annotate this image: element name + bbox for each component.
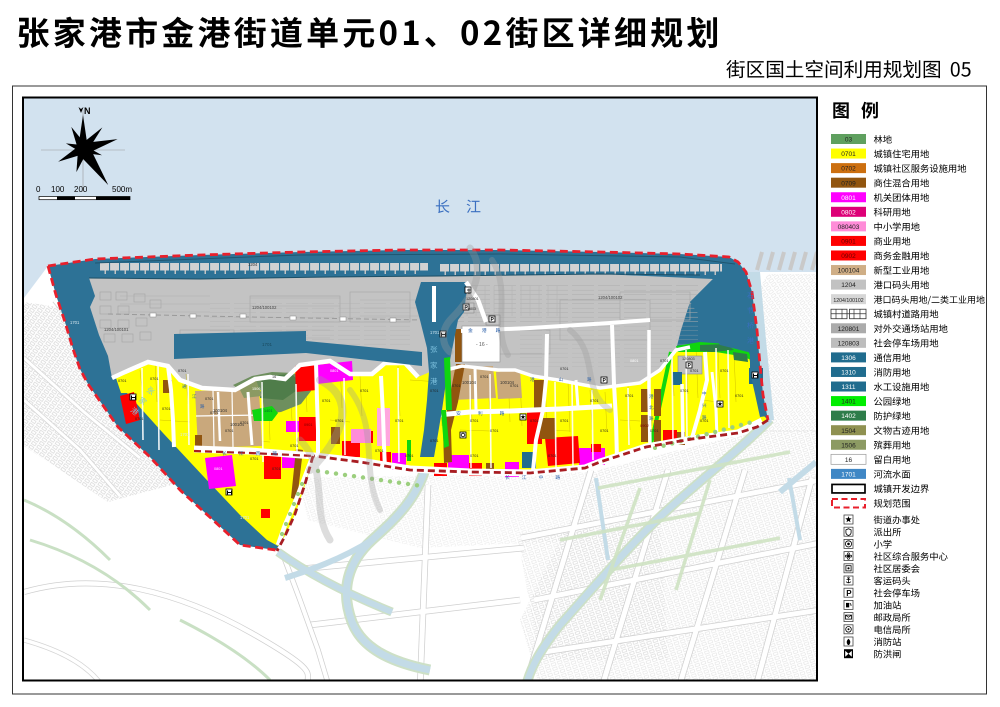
- svg-text:1401: 1401: [264, 409, 272, 413]
- svg-text:1204: 1204: [248, 262, 258, 267]
- svg-text:1204/100102: 1204/100102: [252, 305, 277, 310]
- svg-text:1504: 1504: [841, 428, 856, 435]
- svg-text:0701: 0701: [405, 454, 413, 458]
- svg-text:1402: 1402: [841, 413, 856, 420]
- svg-text:16: 16: [272, 375, 276, 379]
- svg-text:1701: 1701: [240, 515, 250, 520]
- svg-text:1701: 1701: [70, 320, 80, 325]
- svg-text:1506: 1506: [252, 387, 260, 391]
- svg-text:0: 0: [36, 185, 41, 194]
- svg-text:N: N: [84, 106, 91, 116]
- svg-text:100: 100: [51, 185, 65, 194]
- svg-text:120803: 120803: [682, 357, 695, 361]
- svg-text:0802: 0802: [841, 209, 856, 216]
- svg-text:100104: 100104: [462, 380, 477, 385]
- svg-text:0701: 0701: [548, 454, 556, 458]
- svg-text:0801: 0801: [330, 369, 338, 373]
- svg-text:1701: 1701: [430, 330, 440, 335]
- svg-text:0701: 0701: [452, 384, 460, 388]
- svg-text:0701: 0701: [841, 151, 856, 158]
- svg-text:120803: 120803: [464, 307, 476, 311]
- svg-text:0701: 0701: [272, 467, 280, 471]
- svg-text:0709: 0709: [841, 180, 856, 187]
- svg-text:0701: 0701: [625, 394, 633, 398]
- svg-text:0701: 0701: [375, 449, 383, 453]
- svg-text:0701: 0701: [360, 389, 368, 393]
- svg-text:03: 03: [845, 137, 853, 144]
- svg-text:P: P: [846, 589, 852, 598]
- svg-text:0902: 0902: [841, 253, 856, 260]
- svg-text:0701: 0701: [322, 399, 330, 403]
- svg-text:0801: 0801: [841, 195, 856, 202]
- svg-text:1506: 1506: [841, 442, 856, 449]
- svg-text:0701: 0701: [660, 359, 668, 363]
- svg-text:0701: 0701: [250, 457, 258, 461]
- svg-text:0701: 0701: [178, 369, 186, 373]
- svg-text:080403: 080403: [838, 224, 860, 231]
- svg-text:0701: 0701: [470, 454, 478, 458]
- svg-text:0701: 0701: [135, 417, 143, 421]
- svg-text:1204: 1204: [841, 282, 856, 289]
- svg-text:1701: 1701: [180, 432, 190, 437]
- svg-text:0701: 0701: [700, 419, 708, 423]
- svg-text:100104: 100104: [213, 408, 228, 413]
- svg-text:0701: 0701: [205, 397, 213, 401]
- svg-text:1701: 1701: [841, 471, 856, 478]
- svg-text:0701: 0701: [290, 444, 298, 448]
- svg-text:0701: 0701: [650, 429, 658, 433]
- svg-text:0701: 0701: [560, 367, 568, 371]
- svg-text:0701: 0701: [680, 389, 688, 393]
- svg-text:1306: 1306: [841, 355, 856, 362]
- svg-text:0701: 0701: [560, 419, 568, 423]
- svg-text:0701: 0701: [470, 419, 478, 423]
- svg-text:0702: 0702: [841, 166, 856, 173]
- svg-text:120801: 120801: [466, 297, 479, 301]
- svg-text:0801: 0801: [630, 359, 638, 363]
- svg-text:1310: 1310: [841, 370, 856, 377]
- svg-text:1701: 1701: [262, 342, 273, 347]
- svg-text:0701: 0701: [490, 429, 498, 433]
- svg-text:100104: 100104: [838, 268, 860, 275]
- svg-text:0701: 0701: [335, 419, 343, 423]
- svg-text:0701: 0701: [150, 377, 158, 381]
- svg-text:0701: 0701: [600, 429, 608, 433]
- svg-text:0701: 0701: [118, 379, 126, 383]
- svg-text:200: 200: [74, 185, 88, 194]
- svg-text:0701: 0701: [530, 419, 538, 423]
- svg-text:0801: 0801: [214, 467, 222, 471]
- svg-text:0701: 0701: [162, 407, 170, 411]
- svg-text:500m: 500m: [112, 185, 132, 194]
- svg-text:0901: 0901: [841, 239, 856, 246]
- svg-text:1204/100102: 1204/100102: [598, 295, 623, 300]
- svg-text:0701: 0701: [720, 369, 728, 373]
- svg-text:1204/100102: 1204/100102: [833, 298, 863, 304]
- svg-text:16: 16: [845, 457, 853, 464]
- svg-text:0701: 0701: [225, 429, 233, 433]
- svg-text:1204/100101: 1204/100101: [104, 327, 129, 332]
- svg-text:0701: 0701: [735, 394, 743, 398]
- svg-text:- 16 -: - 16 -: [476, 342, 488, 348]
- svg-text:0701: 0701: [395, 419, 403, 423]
- svg-text:1311: 1311: [842, 384, 856, 391]
- svg-text:0701: 0701: [430, 439, 438, 443]
- svg-text:0901: 0901: [304, 423, 312, 427]
- svg-text:1401: 1401: [841, 399, 856, 406]
- svg-text:0701: 0701: [590, 399, 598, 403]
- svg-text:0701: 0701: [690, 369, 698, 373]
- svg-text:120801: 120801: [838, 326, 860, 333]
- svg-text:0701: 0701: [480, 375, 488, 379]
- svg-text:120803: 120803: [838, 340, 860, 347]
- svg-text:100104: 100104: [500, 380, 515, 385]
- svg-text:0701: 0701: [430, 389, 438, 393]
- svg-text:100104: 100104: [230, 422, 245, 427]
- svg-text:0902: 0902: [640, 423, 650, 428]
